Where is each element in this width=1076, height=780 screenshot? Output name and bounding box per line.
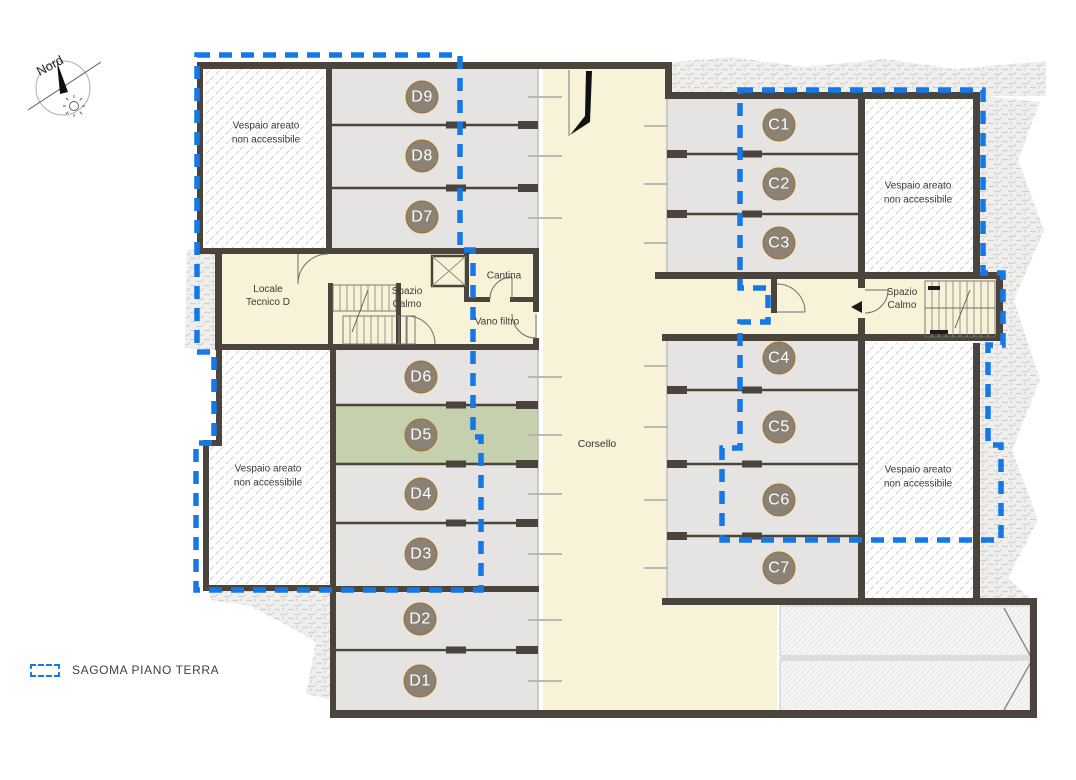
unit-badge-D1[interactable]: D1 — [404, 665, 437, 698]
unit-badge-D7[interactable]: D7 — [406, 201, 439, 234]
unit-badge-C6[interactable]: C6 — [763, 484, 796, 517]
legend-sagoma-swatch — [30, 664, 60, 677]
elevator — [432, 256, 466, 286]
legend-sagoma-label: SAGOMA PIANO TERRA — [72, 663, 219, 677]
room-label-cantina: Cantina — [487, 270, 521, 283]
unit-badge-D5[interactable]: D5 — [405, 419, 438, 452]
unit-badge-D8[interactable]: D8 — [406, 140, 439, 173]
north-compass: Nord — [28, 52, 101, 117]
room-label-vano-filtro: Vano filtro — [475, 316, 519, 329]
unit-badge-C5[interactable]: C5 — [763, 411, 796, 444]
unit-badge-C1[interactable]: C1 — [763, 109, 796, 142]
ramp — [780, 606, 1031, 712]
vespaio-label-1: Vespaio areatonon accessibile — [232, 120, 300, 147]
unit-badge-C2[interactable]: C2 — [763, 168, 796, 201]
unit-badge-D2[interactable]: D2 — [404, 603, 437, 636]
room-label-corsello: Corsello — [578, 438, 617, 452]
unit-badge-C3[interactable]: C3 — [763, 227, 796, 260]
vespaio-label-4: Vespaio areatonon accessibile — [884, 464, 952, 491]
unit-badge-D9[interactable]: D9 — [406, 81, 439, 114]
room-label-locale-tecnico: Locale Tecnico D — [246, 283, 290, 309]
unit-badge-D3[interactable]: D3 — [405, 538, 438, 571]
floor-plan-drawing: Nord Locale Tecnico D Spazio Calmo Canti… — [0, 0, 1076, 780]
legend: SAGOMA PIANO TERRA — [30, 663, 219, 677]
unit-badge-C4[interactable]: C4 — [763, 342, 796, 375]
room-label-spazio-calmo-right: Spazio Calmo — [887, 286, 918, 312]
vespaio-label-2: Vespaio areatonon accessibile — [234, 463, 302, 490]
unit-badge-C7[interactable]: C7 — [763, 552, 796, 585]
sun-icon — [63, 95, 85, 117]
room-label-spazio-calmo-left: Spazio Calmo — [392, 285, 423, 311]
room-D1[interactable] — [336, 651, 538, 710]
unit-badge-D4[interactable]: D4 — [405, 478, 438, 511]
vespaio-label-3: Vespaio areatonon accessibile — [884, 180, 952, 207]
room-D2[interactable] — [336, 592, 538, 648]
room-C4[interactable] — [667, 341, 858, 390]
unit-badge-D6[interactable]: D6 — [405, 361, 438, 394]
